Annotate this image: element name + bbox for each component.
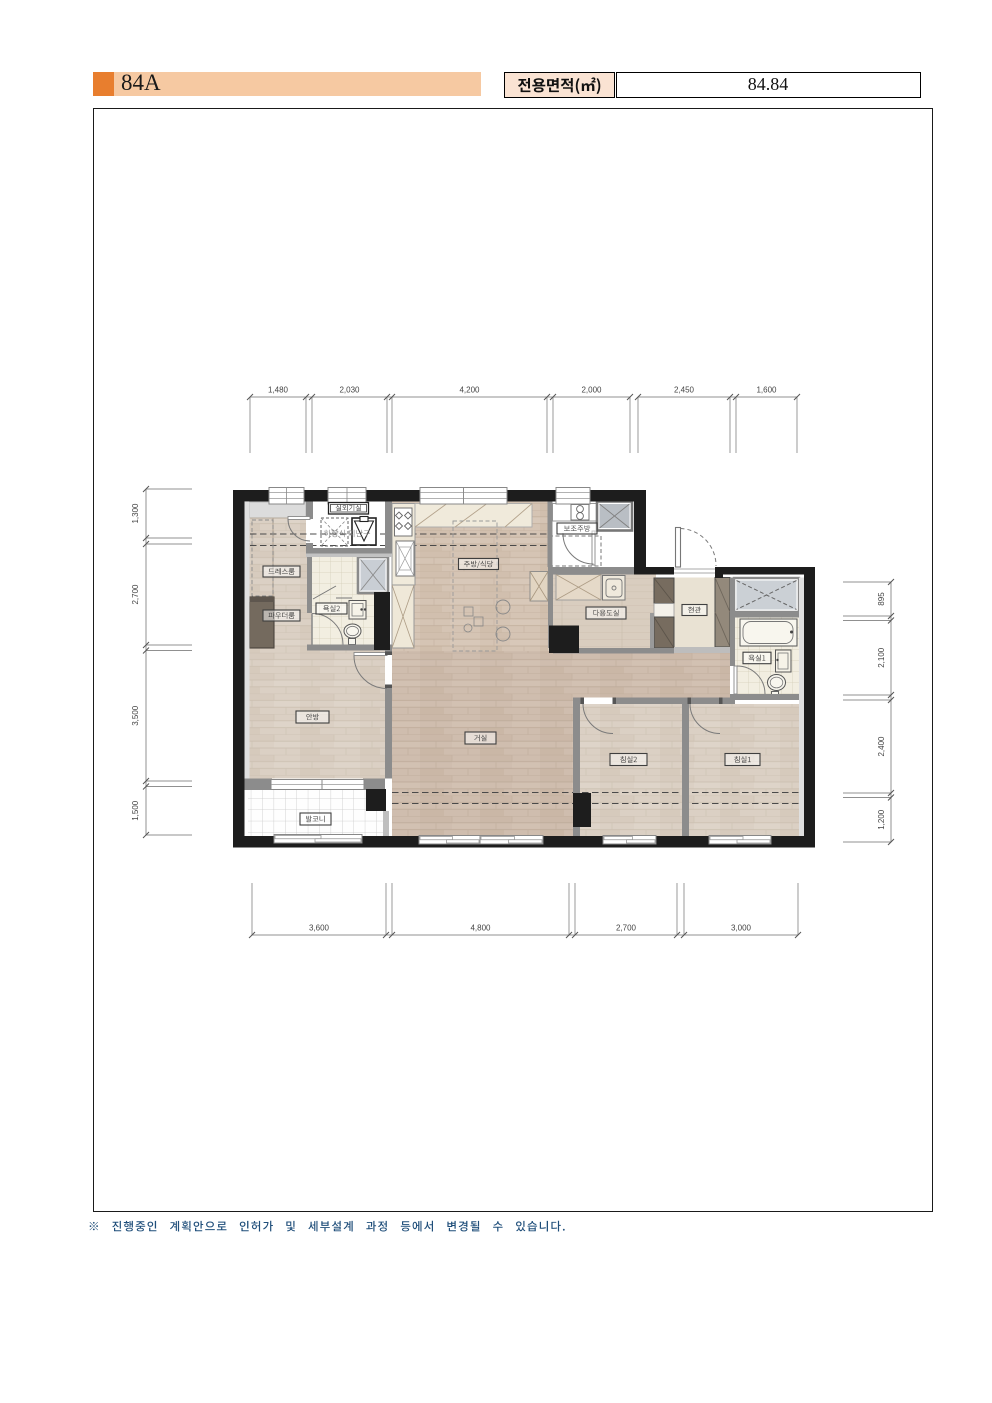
svg-text:1,600: 1,600: [756, 386, 777, 395]
svg-text:1,500: 1,500: [131, 800, 140, 821]
svg-text:895: 895: [877, 592, 886, 606]
svg-text:1,200: 1,200: [877, 809, 886, 830]
svg-text:4,800: 4,800: [470, 924, 491, 933]
svg-text:2,700: 2,700: [616, 924, 637, 933]
svg-text:2,400: 2,400: [877, 736, 886, 757]
svg-text:1,480: 1,480: [268, 386, 289, 395]
svg-text:4,200: 4,200: [459, 386, 480, 395]
svg-text:3,000: 3,000: [731, 924, 752, 933]
svg-text:1,300: 1,300: [131, 503, 140, 524]
svg-text:3,500: 3,500: [131, 705, 140, 726]
svg-text:2,030: 2,030: [339, 386, 360, 395]
svg-text:2,000: 2,000: [581, 386, 602, 395]
svg-text:2,700: 2,700: [131, 584, 140, 605]
svg-text:2,450: 2,450: [674, 386, 695, 395]
svg-text:3,600: 3,600: [309, 924, 330, 933]
svg-text:2,100: 2,100: [877, 647, 886, 668]
